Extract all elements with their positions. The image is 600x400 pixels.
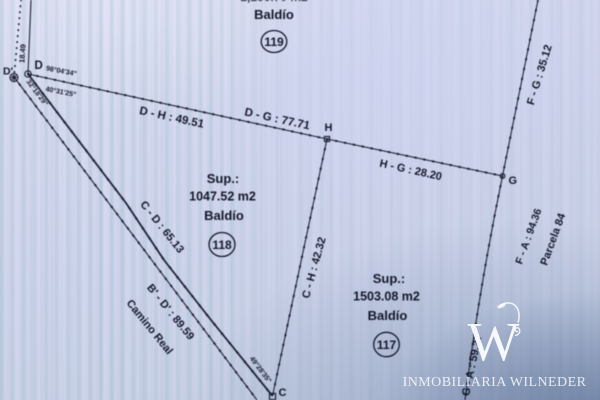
- svg-text:W: W: [468, 311, 520, 372]
- svg-text:INMOBILIARIA WILNEDER: INMOBILIARIA WILNEDER: [403, 375, 587, 390]
